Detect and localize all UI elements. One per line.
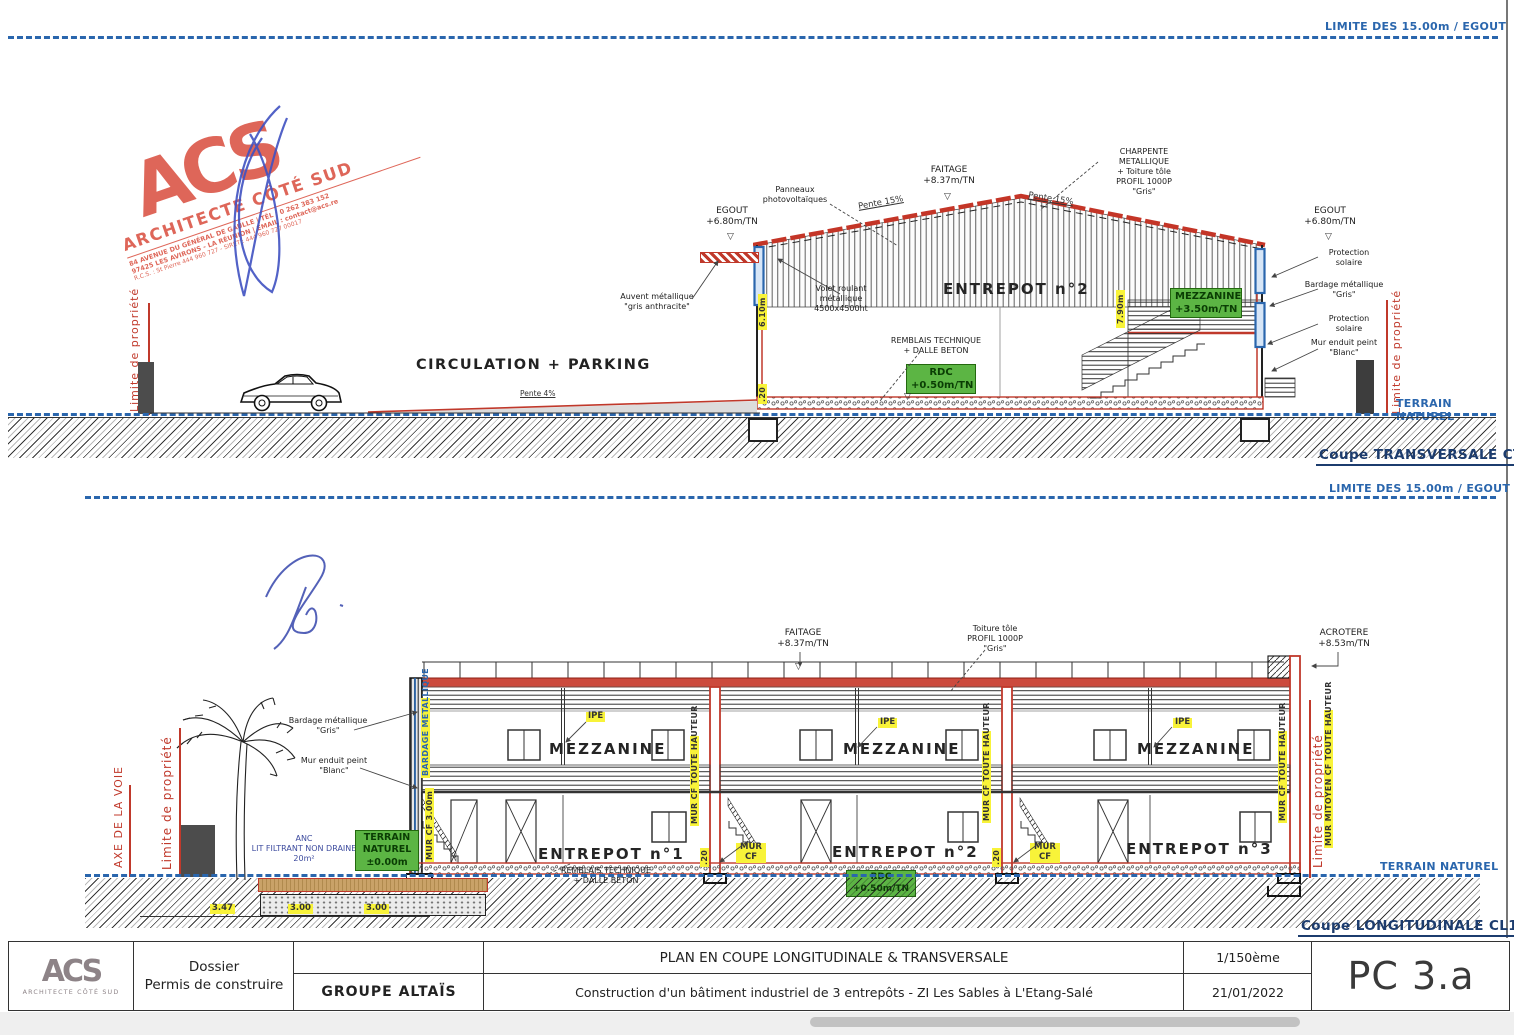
ct-protection-solaire-1: Protection solaire xyxy=(1320,248,1378,268)
cl-entrepot-2: ENTREPOT n°2 xyxy=(832,843,979,861)
cl-dim-2: 3.00 xyxy=(288,904,313,914)
cl-entrepot-1: ENTREPOT n°1 xyxy=(538,845,685,863)
ct-limite-right-line xyxy=(1386,300,1388,415)
ct-protection-solaire-2: Protection solaire xyxy=(1320,314,1378,334)
ct-faitage-label: FAITAGE +8.37m/TN xyxy=(917,165,981,188)
ct-dim-wall: 6.10m xyxy=(758,294,767,330)
limit-top-line xyxy=(8,36,1498,39)
tb-dossier-cell: Dossier Permis de construire xyxy=(135,942,293,1010)
tb-ref-cell: PC 3.a xyxy=(1313,942,1509,1010)
ct-footing-left xyxy=(748,418,778,442)
cl-limite-left-label: Limite de propriété xyxy=(160,762,174,870)
ct-panneaux-label: Panneaux photovoltaïques xyxy=(757,185,833,205)
ct-mur-enduit-label: Mur enduit peint "Blanc" xyxy=(1303,338,1385,358)
drawing-sheet: LIMITE DES 15.00m / EGOUT ACS ARCHITECTE… xyxy=(0,0,1514,1035)
signature-lower xyxy=(248,535,368,655)
cl-murcf3: MUR CF 3.00m xyxy=(425,788,434,862)
sheet-right-border xyxy=(1506,0,1508,938)
tb-client-cell: GROUPE ALTAÏS xyxy=(295,974,483,1010)
cl-dim-1: 3.47 xyxy=(210,904,235,914)
ct-mezzanine-box: MEZZANINE +3.50m/TN xyxy=(1170,288,1242,318)
ct-pente4-label: Pente 4% xyxy=(520,389,555,398)
cl-ipe-2: IPE xyxy=(878,718,897,728)
cl-mur-enduit-label: Mur enduit peint "Blanc" xyxy=(292,756,376,776)
ct-rdc-marker: ▽ xyxy=(904,392,911,402)
cl-tn-box: TERRAIN NATUREL ±0.00m xyxy=(355,830,419,871)
cl-dim-line xyxy=(140,916,430,917)
tb-logo-cell: ACS ARCHITECTE CÔTÉ SUD xyxy=(9,942,133,1010)
ct-egout-left-label: EGOUT +6.80m/TN xyxy=(700,206,764,229)
cl-dim-slab-2: .20 xyxy=(992,848,1001,867)
cl-limite-right-label: Limite de propriété xyxy=(1311,768,1325,868)
ct-auvent-canopy xyxy=(700,252,759,263)
cl-mur-mitoyen: MUR MITOYEN CF TOUTE HAUTEUR xyxy=(1324,710,1333,848)
ct-title: Coupe TRANSVERSALE CT1 xyxy=(1316,447,1514,466)
cl-mezzanine-2: MEZZANINE xyxy=(843,740,960,758)
cl-ipe-1: IPE xyxy=(586,712,605,722)
ct-egout-right-label: EGOUT +6.80m/TN xyxy=(1298,206,1362,229)
ct-dim-mid: 7.90m xyxy=(1116,290,1125,328)
cl-murcf-2: MUR CF xyxy=(1030,843,1060,863)
cl-dim-3: 3.00 xyxy=(364,904,389,914)
tb-logo: ACS xyxy=(42,957,100,987)
cl-entrepot-3: ENTREPOT n°3 xyxy=(1126,840,1273,858)
ct-charpente-label: CHARPENTE METALLIQUE + Toiture tôle PROF… xyxy=(1094,147,1194,197)
ct-entrepot2-label: ENTREPOT n°2 xyxy=(943,280,1090,298)
cl-ipe-3: IPE xyxy=(1173,718,1192,728)
tb-logo-name: ARCHITECTE CÔTÉ SUD xyxy=(23,989,120,996)
cl-title: Coupe LONGITUDINALE CL1 xyxy=(1298,918,1514,937)
limit-mid-label: LIMITE DES 15.00m / EGOUT xyxy=(1329,482,1510,495)
tb-project-cell: Construction d'un bâtiment industriel de… xyxy=(485,974,1183,1010)
ct-limite-left-post xyxy=(138,362,154,414)
ct-rdc-box: RDC +0.50m/TN xyxy=(906,364,976,394)
ct-egout-right-marker: ▽ xyxy=(1325,232,1332,242)
cl-anc-label: ANC LIT FILTRANT NON DRAINE 20m² xyxy=(250,834,358,864)
ct-limite-right-post xyxy=(1356,360,1374,414)
cl-wall-block xyxy=(181,825,215,877)
car-icon xyxy=(235,372,347,414)
signature-upper xyxy=(192,100,342,305)
cl-bardage-v: BARDAGE METALLIQUE xyxy=(421,698,430,778)
ct-footing-right xyxy=(1240,418,1270,442)
limit-top-label: LIMITE DES 15.00m / EGOUT xyxy=(1325,20,1506,33)
cl-axe-line xyxy=(129,785,131,877)
limit-mid-line xyxy=(85,496,1496,499)
ct-egout-left-marker: ▽ xyxy=(727,232,734,242)
cl-mezzanine-3: MEZZANINE xyxy=(1137,740,1254,758)
cl-filter-top-layer xyxy=(258,878,488,892)
cl-bardage-label: Bardage métallique "Gris" xyxy=(286,716,370,736)
ct-faitage-marker: ▽ xyxy=(944,192,951,202)
tb-plan-title-cell: PLAN EN COUPE LONGITUDINALE & TRANSVERSA… xyxy=(485,942,1183,973)
ct-dim-slab: .20 xyxy=(758,384,767,404)
cl-mezzanine-1: MEZZANINE xyxy=(549,740,666,758)
title-block: ACS ARCHITECTE CÔTÉ SUD Dossier Permis d… xyxy=(8,941,1510,1011)
cl-axe-label: AXE DE LA VOIE xyxy=(112,792,125,868)
cl-dim-slab-1: .20 xyxy=(700,848,709,867)
cl-murcf-th-2: MUR CF TOUTE HAUTEUR xyxy=(982,731,991,823)
ct-circulation-label: CIRCULATION + PARKING xyxy=(416,357,651,373)
cl-terrain-line xyxy=(85,874,1480,877)
cl-murcf-th-1: MUR CF TOUTE HAUTEUR xyxy=(690,736,699,826)
ct-volet-label: Volet roulant métallique 4500x4500ht xyxy=(810,284,872,314)
ct-bardage-label: Bardage métallique "Gris" xyxy=(1303,280,1385,300)
cl-murcf-1: MUR CF xyxy=(736,843,766,863)
ct-terrain-line xyxy=(8,413,1496,416)
tb-date-cell: 21/01/2022 xyxy=(1185,974,1311,1010)
cl-acrotere-label: ACROTERE +8.53m/TN xyxy=(1312,628,1376,651)
tb-scale-cell: 1/150ème xyxy=(1185,942,1311,973)
horizontal-scrollbar-thumb[interactable] xyxy=(810,1017,1300,1027)
cl-terrain-label: TERRAIN NATUREL xyxy=(1380,860,1498,873)
cl-murcf-th-3: MUR CF TOUTE HAUTEUR xyxy=(1278,731,1287,823)
ct-remblais-label: REMBLAIS TECHNIQUE + DALLE BETON xyxy=(888,336,984,356)
ct-auvent-label: Auvent métallique "gris anthracite" xyxy=(620,292,694,312)
